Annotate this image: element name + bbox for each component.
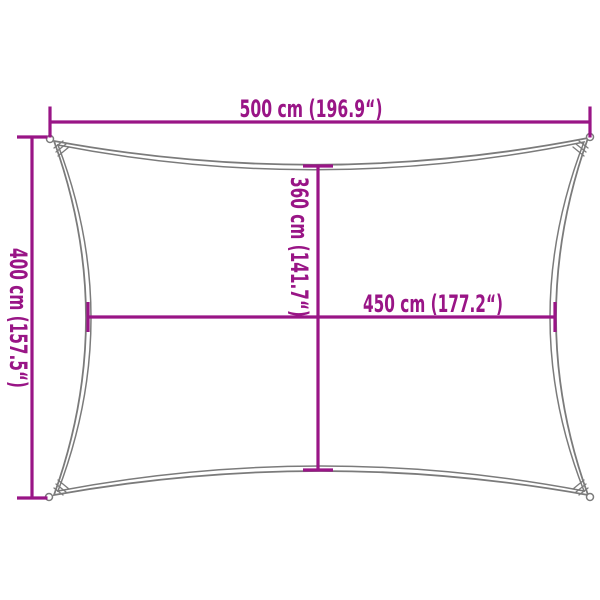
dimension-label-total-height: 400 cm (157.5“): [4, 248, 32, 388]
diagram-canvas: 500 cm (196.9“) 400 cm (157.5“) 360 cm (…: [0, 0, 600, 600]
dimension-label-inner-width: 450 cm (177.2“): [363, 290, 503, 318]
dimension-diagram: 500 cm (196.9“) 400 cm (157.5“) 360 cm (…: [0, 0, 600, 600]
corner-loop-icon: [587, 494, 594, 501]
dimension-label-inner-height: 360 cm (141.7“): [285, 177, 313, 317]
dimension-label-total-width: 500 cm (196.9“): [240, 95, 383, 123]
dimension-total-width: 500 cm (196.9“): [50, 95, 590, 138]
dimension-total-height: 400 cm (157.5“): [4, 137, 48, 498]
